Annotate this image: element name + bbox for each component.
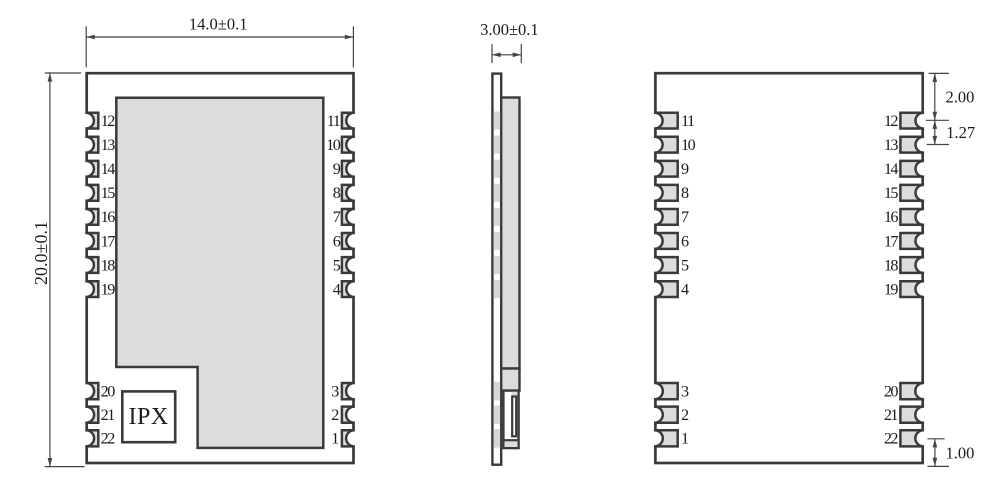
svg-text:19: 19 bbox=[101, 280, 116, 298]
svg-text:3.00±0.1: 3.00±0.1 bbox=[480, 20, 539, 39]
svg-text:1.27: 1.27 bbox=[946, 123, 975, 142]
svg-text:10: 10 bbox=[326, 136, 341, 154]
svg-text:2.00: 2.00 bbox=[946, 88, 975, 107]
svg-text:21: 21 bbox=[884, 406, 899, 424]
svg-text:15: 15 bbox=[101, 184, 116, 202]
svg-text:21: 21 bbox=[101, 406, 116, 424]
svg-text:22: 22 bbox=[101, 430, 116, 448]
svg-text:1: 1 bbox=[331, 430, 339, 448]
svg-text:19: 19 bbox=[884, 280, 899, 298]
svg-text:16: 16 bbox=[884, 208, 899, 226]
svg-text:12: 12 bbox=[101, 112, 116, 130]
svg-text:11: 11 bbox=[327, 112, 341, 130]
svg-text:18: 18 bbox=[884, 256, 899, 274]
svg-text:14.0±0.1: 14.0±0.1 bbox=[189, 15, 248, 34]
svg-text:20.0±0.1: 20.0±0.1 bbox=[31, 221, 51, 285]
svg-text:2: 2 bbox=[331, 406, 339, 424]
svg-text:22: 22 bbox=[884, 430, 899, 448]
svg-text:IPX: IPX bbox=[129, 404, 169, 430]
svg-text:3: 3 bbox=[331, 382, 339, 400]
svg-text:3: 3 bbox=[681, 382, 689, 400]
svg-text:16: 16 bbox=[101, 208, 116, 226]
svg-text:17: 17 bbox=[101, 232, 116, 250]
svg-text:20: 20 bbox=[101, 382, 116, 400]
svg-text:14: 14 bbox=[884, 160, 899, 178]
svg-text:1.00: 1.00 bbox=[946, 443, 975, 462]
svg-text:10: 10 bbox=[681, 136, 696, 154]
svg-text:18: 18 bbox=[101, 256, 116, 274]
svg-text:15: 15 bbox=[884, 184, 899, 202]
svg-text:1: 1 bbox=[681, 430, 689, 448]
svg-text:20: 20 bbox=[884, 382, 899, 400]
svg-text:13: 13 bbox=[884, 136, 899, 154]
svg-text:12: 12 bbox=[884, 112, 899, 130]
svg-text:11: 11 bbox=[681, 112, 695, 130]
svg-text:13: 13 bbox=[101, 136, 116, 154]
svg-text:2: 2 bbox=[681, 406, 689, 424]
svg-text:14: 14 bbox=[101, 160, 116, 178]
svg-text:17: 17 bbox=[884, 232, 899, 250]
